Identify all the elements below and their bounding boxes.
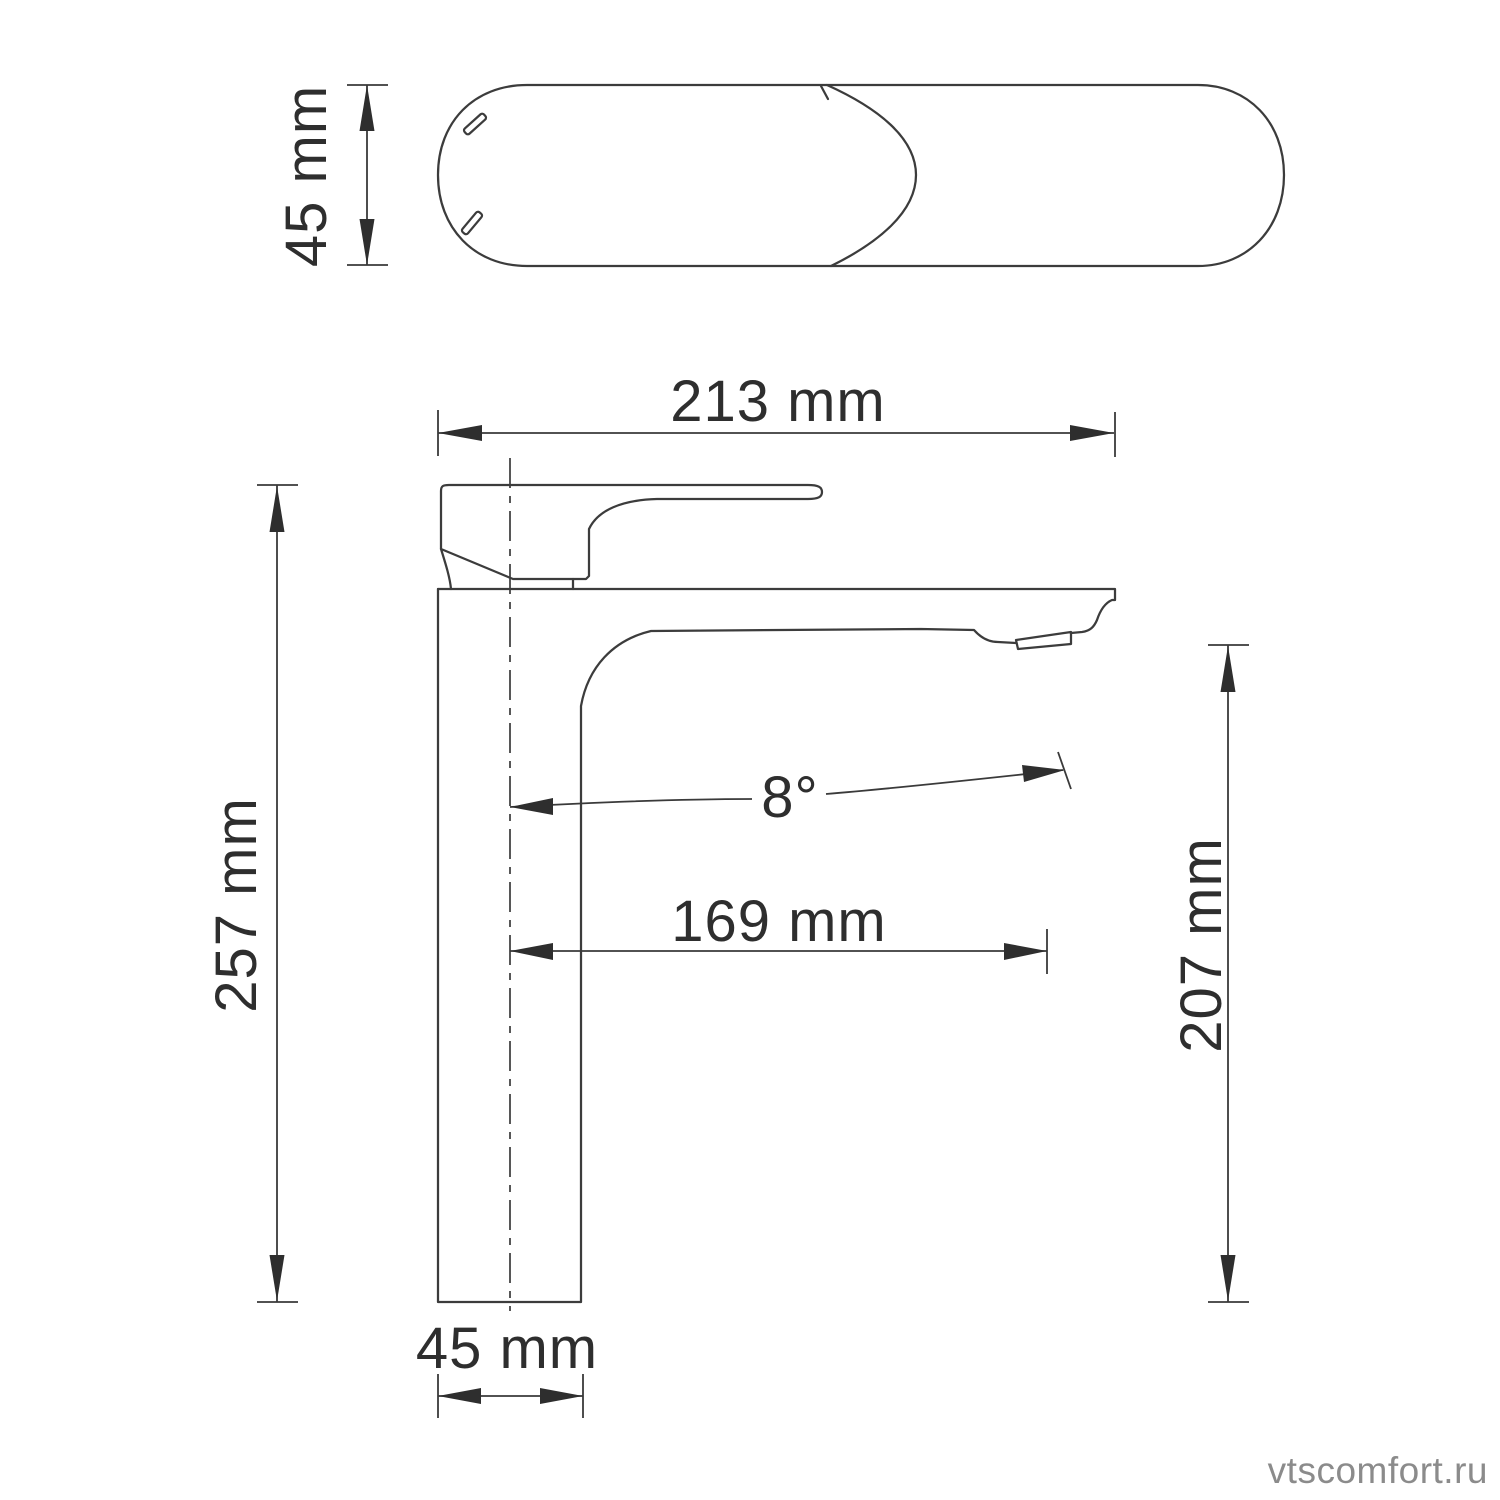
arrow-left-icon	[510, 943, 553, 960]
arrow-left-icon	[438, 425, 482, 441]
side-view-handle-foot-curve	[441, 549, 451, 589]
arrow-down-icon	[360, 219, 375, 265]
top-view-divider-notch	[821, 86, 828, 99]
spout-height-dimension: 207 mm	[1169, 645, 1249, 1302]
spout-reach-dimension: 169 mm	[510, 889, 1047, 974]
spout-height-label: 207 mm	[1169, 837, 1234, 1053]
arrow-up-icon	[270, 486, 285, 532]
arrow-left-icon	[510, 798, 553, 815]
top-view-slot-upper	[463, 113, 487, 136]
arrow-left-icon	[438, 1388, 481, 1404]
base-width-dimension: 45 mm	[416, 1316, 598, 1418]
arrow-up-icon	[360, 85, 375, 131]
arrow-right-icon	[1022, 765, 1065, 782]
top-view-slot-lower	[461, 211, 483, 235]
arrow-down-icon	[270, 1255, 285, 1301]
watermark-text: vtscomfort.ru	[1268, 1450, 1488, 1492]
height-label: 257 mm	[204, 797, 269, 1013]
top-view: 45 mm	[274, 85, 1284, 267]
length-label: 213 mm	[670, 369, 886, 434]
length-dimension: 213 mm	[438, 369, 1115, 457]
side-view: 213 mm 257 mm 207 mm 8°	[204, 369, 1249, 1418]
base-width-label: 45 mm	[416, 1316, 598, 1381]
top-view-body-outline	[438, 85, 1284, 266]
spout-reach-label: 169 mm	[671, 889, 887, 954]
side-view-handle-outline	[441, 485, 822, 579]
height-dimension: 257 mm	[204, 485, 298, 1302]
spout-angle-dimension: 8°	[510, 752, 1071, 830]
arrow-right-icon	[540, 1388, 583, 1404]
top-view-handle-divider	[827, 85, 916, 266]
arrow-right-icon	[1004, 943, 1047, 960]
top-view-depth-dimension: 45 mm	[274, 85, 388, 267]
top-view-depth-label: 45 mm	[274, 85, 339, 267]
side-view-spout-tip	[438, 589, 1115, 633]
side-view-aerator	[1016, 632, 1071, 649]
arrow-right-icon	[1070, 425, 1114, 441]
arrow-up-icon	[1221, 646, 1236, 692]
spout-angle-label: 8°	[761, 765, 818, 830]
arrow-down-icon	[1221, 1255, 1236, 1301]
faucet-technical-drawing: 45 mm 213 mm 257 mm	[0, 0, 1500, 1500]
